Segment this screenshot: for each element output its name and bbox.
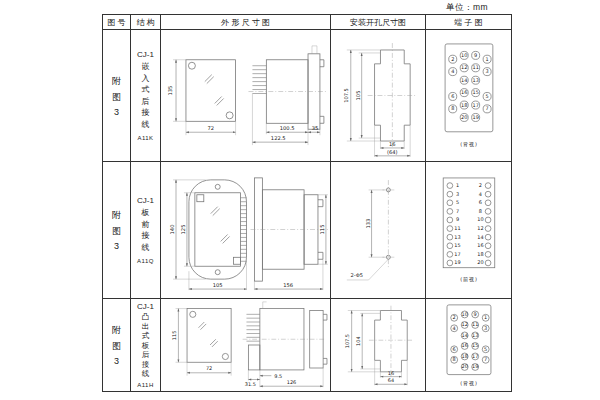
- dim-side-height: 115: [319, 225, 325, 235]
- install-drawing-a11q: 133 2-Φ5: [331, 162, 425, 298]
- terminal-number: 11: [473, 64, 479, 70]
- terminal-number: 15: [473, 89, 479, 95]
- terminal-number: 14: [461, 77, 467, 83]
- dim-depth: 126: [287, 379, 296, 385]
- terminal-number: 5: [484, 346, 487, 352]
- terminal-number: 20: [461, 114, 467, 120]
- dim-install-v1: 107.5: [343, 88, 349, 103]
- terminal-number: 8: [479, 208, 482, 214]
- figure-cell-row2: 附图3: [103, 162, 131, 299]
- terminal-number: 11: [454, 225, 460, 231]
- terminal-view-label: (背视): [460, 141, 478, 148]
- terminal-number: 3: [456, 191, 459, 197]
- terminal-number: 7: [484, 356, 487, 362]
- terminal-number: 19: [454, 259, 460, 265]
- structure-cell-row1: CJ-1 嵌入式后接线 A11K: [131, 30, 161, 162]
- figure-number: 附图3: [112, 321, 121, 369]
- dim-front-height2: 125: [180, 225, 186, 235]
- header-install: 安装开孔尺寸图: [331, 15, 426, 30]
- dim-flange: 35: [312, 125, 319, 131]
- outline-drawing-a11k: 135 72 100.5 35 122.5: [161, 30, 330, 161]
- terminal-view-label: (背视): [460, 380, 478, 387]
- install-drawing-a11h: 107.5 104 16 64: [331, 299, 425, 391]
- dim-side-depth: 156: [283, 282, 293, 288]
- terminal-circle: [485, 260, 491, 266]
- terminal-grid: 2109141211314136161558181772019: [451, 311, 489, 370]
- structure-series: CJ-1: [137, 302, 154, 311]
- dim-offset: 9.5: [274, 373, 282, 379]
- terminal-grid: 1357911131517192468101214161820: [447, 182, 491, 266]
- terminal-number: 9: [474, 52, 477, 58]
- dim-front-width: 105: [213, 282, 223, 288]
- terminal-number: 12: [461, 64, 467, 70]
- dim-install-h2: 64: [388, 377, 394, 383]
- structure-model-code: A11H: [137, 382, 154, 388]
- terminal-diagram-a11k: 2109141211314136161558181772019 (背视): [426, 30, 511, 161]
- figure-cell-row1: 附图3: [103, 30, 131, 162]
- terminal-number: 13: [454, 234, 460, 240]
- terminal-circle: [485, 226, 491, 232]
- dim-front-width: 72: [206, 365, 212, 371]
- terminal-circle: [447, 200, 453, 206]
- terminal-circle: [447, 183, 453, 189]
- dim-install-v2: 104: [355, 336, 361, 345]
- terminal-circle: [447, 191, 453, 197]
- terminal-number: 10: [477, 217, 483, 223]
- terminal-number: 7: [486, 105, 489, 111]
- structure-model-code: A11K: [137, 135, 153, 141]
- terminal-number: 1: [456, 182, 459, 188]
- figure-cell-row3: 附图3: [103, 299, 131, 391]
- outline-drawing-cell-row1: 135 72 100.5 35 122.5: [161, 30, 331, 162]
- terminal-circle: [485, 183, 491, 189]
- dim-install-v2: 105: [355, 91, 361, 101]
- structure-cell-row2: CJ-1 板前接线 A11Q: [131, 162, 161, 299]
- structure-cell-row3: CJ-1 凸出式板后接线 A11H: [131, 299, 161, 391]
- structure-model-code: A11Q: [137, 258, 154, 264]
- structure-series: CJ-1: [137, 196, 154, 205]
- dim-front-height: 135: [167, 86, 173, 96]
- install-drawing-a11k: 107.5 105 16 (64): [331, 30, 425, 161]
- terminal-view-label: (前视): [460, 276, 478, 283]
- structure-series: CJ-1: [137, 50, 154, 59]
- terminal-number: 15: [454, 242, 460, 248]
- terminal-number: 19: [472, 363, 478, 369]
- terminal-number: 8: [451, 105, 454, 111]
- terminal-number: 17: [473, 102, 479, 108]
- dim-front-height: 115: [171, 331, 177, 340]
- terminal-number: 1: [486, 56, 489, 62]
- header-figure: 图 号: [103, 15, 131, 30]
- terminal-circle: [447, 260, 453, 266]
- terminal-number: 5: [456, 199, 459, 205]
- install-drawing-cell-row3: 107.5 104 16 64: [331, 299, 426, 391]
- outline-drawing-a11h: 115 72 9.5 31.5 126: [161, 299, 330, 391]
- terminal-circle: [447, 217, 453, 223]
- terminal-grid: 2109141211314136161558181772019: [449, 51, 491, 121]
- terminal-number: 20: [462, 363, 468, 369]
- terminal-circle: [447, 243, 453, 249]
- terminal-diagram-a11h: 2109141211314136161558181772019 (背视): [426, 299, 511, 391]
- terminal-number: 3: [486, 68, 489, 74]
- dim-install-h2: (64): [387, 149, 398, 155]
- terminal-number: 18: [462, 353, 468, 359]
- header-terminal: 端 子 图: [426, 15, 511, 30]
- terminal-number: 19: [473, 114, 479, 120]
- terminal-number: 4: [479, 191, 482, 197]
- outline-drawing-cell-row3: 115 72 9.5 31.5 126: [161, 299, 331, 391]
- structure-name: 凸出式板后接线: [142, 312, 150, 379]
- terminal-number: 9: [456, 217, 459, 223]
- terminal-circle: [485, 200, 491, 206]
- terminal-number: 9: [474, 311, 477, 317]
- terminal-circle: [447, 209, 453, 215]
- terminal-number: 12: [477, 225, 483, 231]
- terminal-number: 17: [454, 251, 460, 257]
- terminal-number: 10: [461, 52, 467, 58]
- dim-install-v1: 107.5: [344, 334, 350, 348]
- dim-install-h1: 16: [388, 370, 394, 376]
- terminal-circle: [447, 251, 453, 257]
- terminal-drawing-cell-row2: 1357911131517192468101214161820 (前视): [426, 162, 511, 299]
- terminal-number: 18: [461, 102, 467, 108]
- terminal-number: 4: [451, 68, 454, 74]
- terminal-number: 14: [462, 332, 468, 338]
- figure-number: 附图3: [112, 206, 121, 254]
- unit-label: 单位：mm: [446, 2, 488, 14]
- terminal-number: 16: [462, 342, 468, 348]
- outline-drawing-a11q: 140 125 105 156 115: [161, 162, 330, 298]
- terminal-drawing-cell-row3: 2109141211314136161558181772019 (背视): [426, 299, 511, 391]
- terminal-number: 12: [462, 321, 468, 327]
- terminal-number: 18: [477, 251, 483, 257]
- terminal-number: 3: [484, 325, 487, 331]
- terminal-circle: [485, 234, 491, 240]
- hole-spec-label: 2-Φ5: [351, 272, 363, 278]
- header-outline: 外 形 尺 寸 图: [161, 15, 331, 30]
- dim-stud: 31.5: [245, 381, 256, 387]
- terminal-circle: [485, 209, 491, 215]
- terminal-number: 6: [453, 346, 456, 352]
- terminal-circle: [447, 226, 453, 232]
- terminal-circle: [485, 243, 491, 249]
- terminal-number: 4: [453, 325, 456, 331]
- terminal-circle: [485, 217, 491, 223]
- terminal-number: 8: [453, 356, 456, 362]
- dimension-table: 图 号 结 构 外 形 尺 寸 图 安装开孔尺寸图 端 子 图 附图3 CJ-1…: [102, 14, 512, 392]
- terminal-circle: [485, 251, 491, 257]
- terminal-number: 1: [484, 314, 487, 320]
- terminal-number: 13: [472, 332, 478, 338]
- dim-front-height: 140: [169, 225, 175, 235]
- terminal-number: 14: [477, 234, 483, 240]
- terminal-number: 17: [472, 353, 478, 359]
- install-drawing-cell-row2: 133 2-Φ5: [331, 162, 426, 299]
- terminal-number: 2: [453, 314, 456, 320]
- structure-name: 嵌入式后接线: [142, 61, 150, 130]
- terminal-number: 7: [456, 208, 459, 214]
- terminal-number: 2: [479, 182, 482, 188]
- terminal-number: 2: [451, 56, 454, 62]
- install-drawing-cell-row1: 107.5 105 16 (64): [331, 30, 426, 162]
- terminal-number: 11: [472, 321, 478, 327]
- terminal-number: 20: [477, 259, 483, 265]
- terminal-number: 16: [477, 242, 483, 248]
- terminal-number: 6: [451, 93, 454, 99]
- document-page: 单位：mm 图 号 结 构 外 形 尺 寸 图 安装开孔尺寸图 端 子 图 附图…: [0, 0, 600, 400]
- terminal-number: 15: [472, 342, 478, 348]
- terminal-circle: [485, 191, 491, 197]
- terminal-number: 16: [461, 89, 467, 95]
- outline-drawing-cell-row2: 140 125 105 156 115: [161, 162, 331, 299]
- dim-front-width: 72: [207, 125, 214, 131]
- dim-install-v1: 133: [365, 219, 371, 229]
- terminal-number: 10: [462, 311, 468, 317]
- terminal-drawing-cell-row1: 2109141211314136161558181772019 (背视): [426, 30, 511, 162]
- dim-depth2: 122.5: [271, 135, 286, 141]
- figure-number: 附图3: [112, 72, 121, 120]
- terminal-number: 5: [486, 93, 489, 99]
- header-structure: 结 构: [131, 15, 161, 30]
- terminal-number: 6: [479, 199, 482, 205]
- dim-install-h1: 16: [389, 141, 396, 147]
- structure-name: 板前接线: [142, 207, 150, 253]
- terminal-number: 13: [473, 77, 479, 83]
- dim-depth1: 100.5: [280, 125, 295, 131]
- terminal-circle: [447, 234, 453, 240]
- terminal-diagram-a11q: 1357911131517192468101214161820 (前视): [426, 162, 511, 298]
